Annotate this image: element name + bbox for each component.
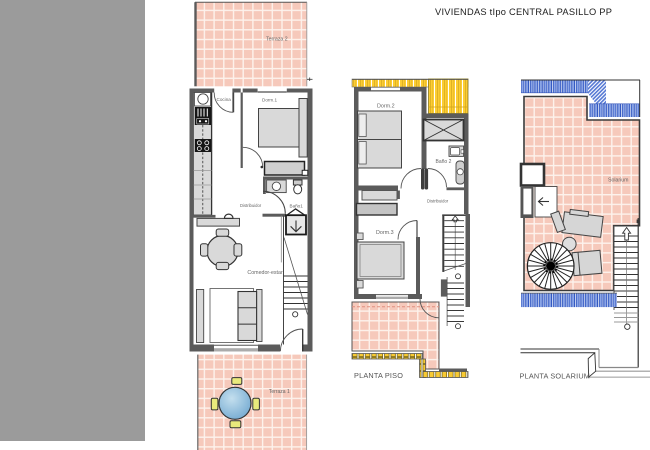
- svg-text:Comedor-estar: Comedor-estar: [247, 270, 283, 276]
- svg-text:Terraza 1: Terraza 1: [269, 389, 290, 395]
- svg-text:PLANTA SOLARIUM: PLANTA SOLARIUM: [520, 372, 591, 381]
- svg-text:PLANTA PISO: PLANTA PISO: [354, 371, 403, 380]
- svg-text:Dorm.2: Dorm.2: [377, 103, 395, 109]
- svg-text:Distribuidor: Distribuidor: [427, 199, 449, 204]
- svg-text:VIVIENDAS tIpo CENTRAL PASILLO: VIVIENDAS tIpo CENTRAL PASILLO PP: [435, 7, 612, 17]
- svg-text:Dorm.1: Dorm.1: [262, 97, 278, 102]
- svg-text:Distribuidor: Distribuidor: [240, 203, 262, 208]
- svg-text:Solarium: Solarium: [608, 177, 628, 183]
- svg-text:Baño1: Baño1: [290, 203, 304, 208]
- svg-text:Cocina: Cocina: [217, 97, 232, 102]
- svg-text:Baño 2: Baño 2: [436, 159, 452, 165]
- svg-text:Terraza 2: Terraza 2: [266, 36, 288, 42]
- svg-text:Dorm.3: Dorm.3: [376, 230, 394, 236]
